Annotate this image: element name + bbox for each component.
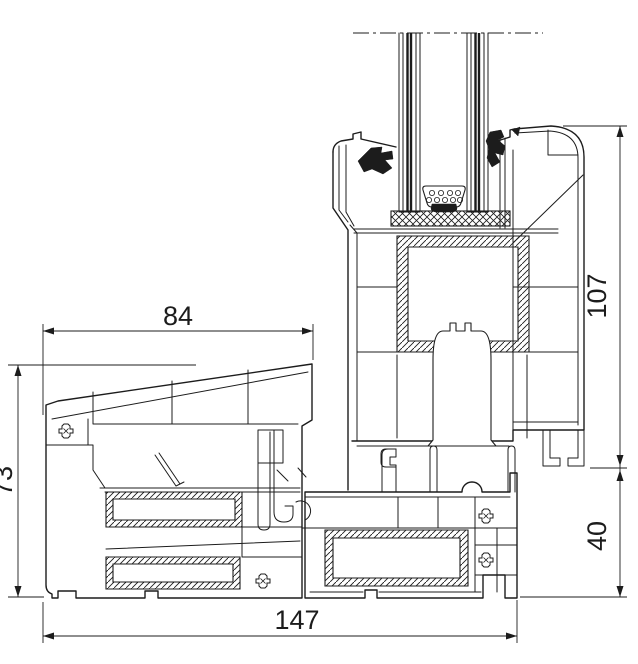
sash-bottom-hook [381,449,396,467]
gasket-clip-right [512,127,520,136]
screw-boss [479,509,493,523]
sash-profile [333,126,584,490]
screw-boss [59,424,73,438]
glazing-gasket-left [358,147,393,174]
dimension-label-bottom-width: 147 [274,605,319,635]
frame-steel-reinforcement [325,530,468,586]
dimension-147-bottom-width: 147 [43,600,517,643]
threshold-profile [46,364,312,598]
screw-boss [256,574,270,588]
glazing-bead-left [339,145,354,226]
clip-finger [155,453,184,486]
dimension-label-sash-height: 107 [582,273,612,318]
dimension-40-frame-height: 40 [520,468,627,597]
glass-pane-inner [467,33,488,212]
screw-boss [479,553,493,567]
glazing-gasket-right [486,130,505,167]
dimension-label-top-width: 84 [163,301,193,331]
window-profile-section-drawing: 84 73 107 40 147 [0,0,638,664]
sash-bottom-clips [543,430,584,466]
insulated-glass-unit [391,33,510,226]
frame-profile [274,430,517,598]
dimension-label-frame-height: 40 [582,521,612,551]
glass-spacer [423,186,465,212]
hardware-groove [428,323,496,446]
glass-pane-outer [399,33,420,212]
setting-block [391,211,510,226]
threshold-steel-upper [106,492,242,527]
dimension-label-left-height: 73 [0,466,18,496]
drawing-canvas: 84 73 107 40 147 [0,0,638,664]
dimension-107-sash-height: 107 [563,126,627,468]
threshold-steel-lower [106,557,240,589]
glazing-bead-right [500,130,578,430]
